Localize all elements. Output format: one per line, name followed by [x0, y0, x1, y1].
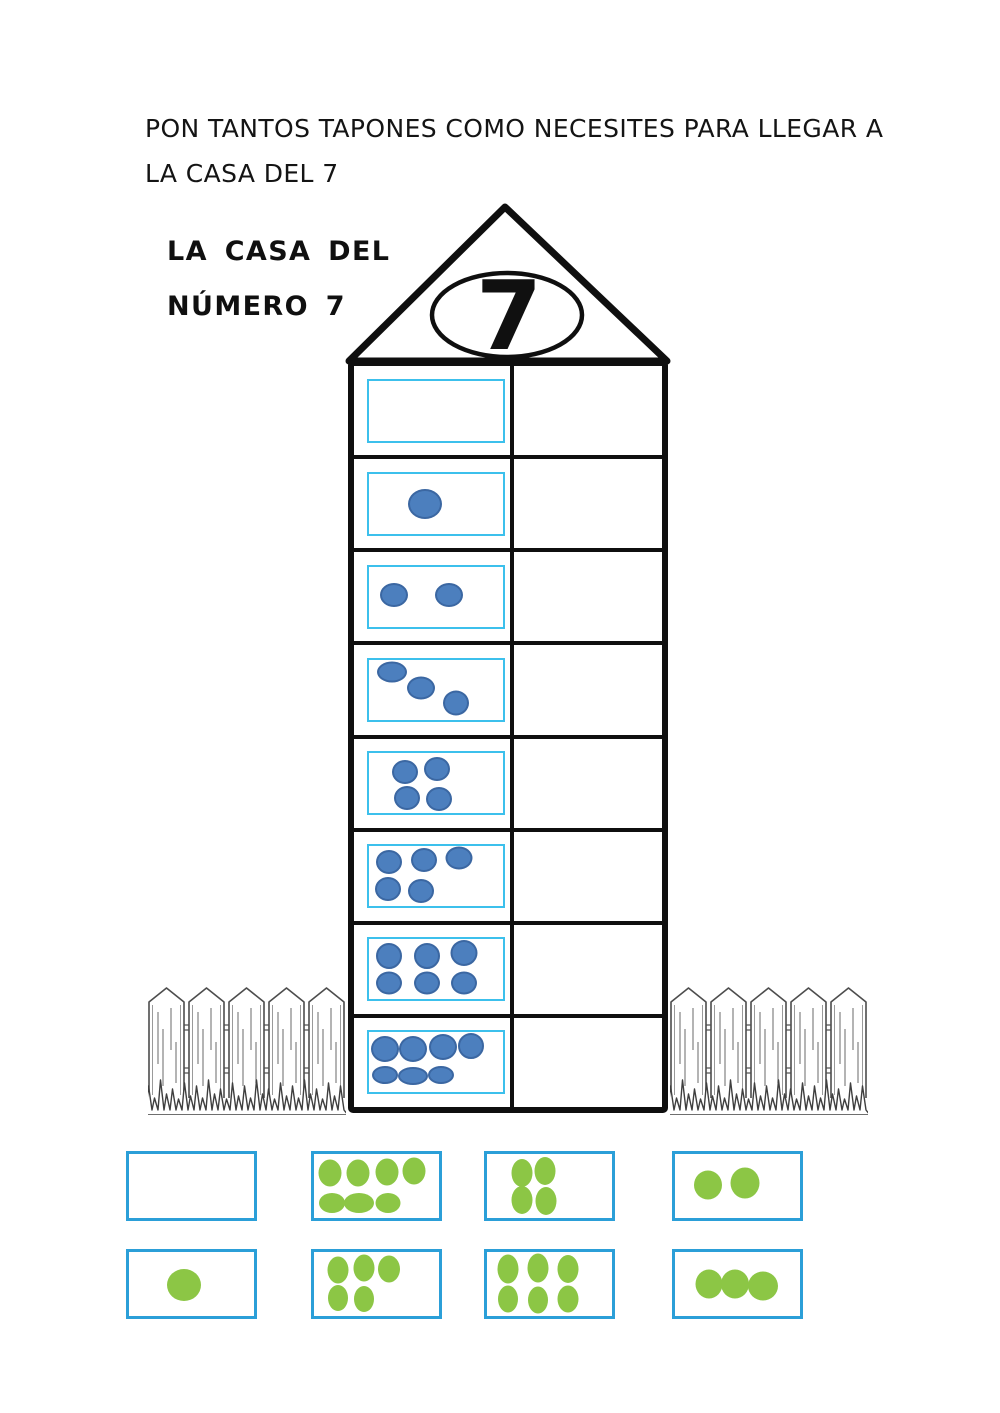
cap-dot [528, 1287, 548, 1314]
picket-fence-graphic [148, 984, 346, 1115]
cap-dot [445, 846, 472, 869]
answer-card-count-2[interactable] [672, 1151, 803, 1221]
tower-count-cell [354, 739, 510, 828]
cap-dot [512, 1159, 533, 1187]
tower-row [354, 739, 662, 832]
cap-dot [394, 786, 420, 810]
tower-answer-cell[interactable] [510, 739, 662, 828]
tower-answer-cell[interactable] [510, 645, 662, 734]
cap-dot [408, 879, 434, 903]
answer-card-count-1[interactable] [126, 1249, 257, 1319]
tower-row [354, 645, 662, 738]
cap-dot [534, 1157, 555, 1185]
house-tower [348, 360, 668, 1113]
tower-answer-cell[interactable] [510, 459, 662, 548]
worksheet-page: PON TANTOS TAPONES COMO NECESITES PARA L… [0, 0, 1000, 1413]
picket-fence-left [148, 984, 346, 1115]
dot-box-count-4 [367, 751, 505, 815]
dot-box-count-5 [367, 844, 505, 908]
cap-dot [354, 1286, 374, 1312]
cap-dot [375, 877, 401, 901]
cap-dot [380, 583, 408, 607]
cap-dot [414, 943, 440, 969]
tower-row [354, 832, 662, 925]
cap-dot [392, 760, 418, 784]
tower-answer-cell[interactable] [510, 925, 662, 1014]
cap-dot [319, 1193, 345, 1213]
cap-dot [414, 972, 440, 995]
cap-dot [375, 1193, 400, 1213]
cap-dot [378, 1256, 400, 1283]
tower-answer-cell[interactable] [510, 1018, 662, 1107]
cap-dot [376, 850, 402, 874]
cap-dot [721, 1270, 749, 1299]
tower-row [354, 459, 662, 552]
answer-card-count-7[interactable] [311, 1151, 442, 1221]
dot-box-count-7 [367, 1030, 505, 1094]
answer-card-count-0[interactable] [126, 1151, 257, 1221]
cap-dot [558, 1255, 579, 1283]
tower-count-cell [354, 645, 510, 734]
dot-box-count-1 [367, 472, 505, 536]
cap-dot [528, 1254, 549, 1283]
tower-count-cell [354, 459, 510, 548]
cap-dot [407, 677, 435, 700]
tower-row [354, 552, 662, 645]
cap-dot [403, 1157, 426, 1184]
tower-answer-cell[interactable] [510, 366, 662, 455]
cap-dot [458, 1033, 484, 1059]
cap-dot [424, 757, 450, 781]
cap-dot [371, 1036, 399, 1062]
cap-dot [408, 489, 442, 519]
cap-dot [535, 1187, 556, 1215]
cap-dot [695, 1270, 722, 1299]
house-roof-graphic: 7 [330, 197, 680, 367]
cap-dot [346, 1160, 369, 1187]
answer-card-count-4[interactable] [484, 1151, 615, 1221]
dot-box-count-6 [367, 937, 505, 1001]
answer-card-count-6[interactable] [484, 1249, 615, 1319]
dot-box-count-0 [367, 379, 505, 443]
cap-dot [372, 1066, 398, 1084]
cap-dot [377, 661, 407, 682]
cap-dot [512, 1186, 533, 1214]
dot-box-count-3 [367, 658, 505, 722]
cap-dot [167, 1269, 201, 1301]
cap-dot [429, 1034, 457, 1060]
cap-dot [451, 940, 478, 966]
instruction-line-1: PON TANTOS TAPONES COMO NECESITES PARA L… [145, 106, 883, 151]
cap-dot [327, 1256, 348, 1283]
tower-row [354, 1018, 662, 1107]
cap-dot [451, 972, 477, 995]
picket-fence-right [670, 984, 868, 1115]
cap-dot [398, 1067, 428, 1085]
cap-dot [376, 943, 402, 969]
cap-dot [399, 1036, 427, 1062]
picket-fence-graphic [670, 984, 868, 1115]
roof-number: 7 [476, 262, 542, 367]
cap-dot [375, 1158, 398, 1185]
cap-dot [344, 1193, 374, 1213]
instruction-line-2: LA CASA DEL 7 [145, 151, 883, 196]
cap-dot [443, 690, 469, 715]
tower-count-cell [354, 832, 510, 921]
tower-answer-cell[interactable] [510, 552, 662, 641]
cap-dot [498, 1285, 518, 1312]
cap-dot [435, 583, 463, 607]
cap-dot [428, 1066, 454, 1084]
cap-dot [376, 972, 402, 995]
answer-card-count-3[interactable] [672, 1249, 803, 1319]
worksheet-instruction: PON TANTOS TAPONES COMO NECESITES PARA L… [145, 106, 883, 196]
tower-row [354, 366, 662, 459]
cap-dot [328, 1285, 348, 1311]
cap-dot [426, 787, 452, 811]
dot-box-count-2 [367, 565, 505, 629]
tower-row [354, 925, 662, 1018]
cap-dot [694, 1170, 722, 1199]
cap-dot [498, 1255, 519, 1284]
tower-count-cell [354, 366, 510, 455]
cap-dot [411, 848, 437, 872]
tower-answer-cell[interactable] [510, 832, 662, 921]
cap-dot [354, 1255, 375, 1282]
tower-count-cell [354, 552, 510, 641]
cap-dot [748, 1271, 778, 1300]
cap-dot [558, 1285, 579, 1312]
answer-card-count-5[interactable] [311, 1249, 442, 1319]
tower-count-cell [354, 1018, 510, 1107]
tower-count-cell [354, 925, 510, 1014]
cap-dot [731, 1167, 760, 1198]
cap-dot [319, 1160, 342, 1187]
